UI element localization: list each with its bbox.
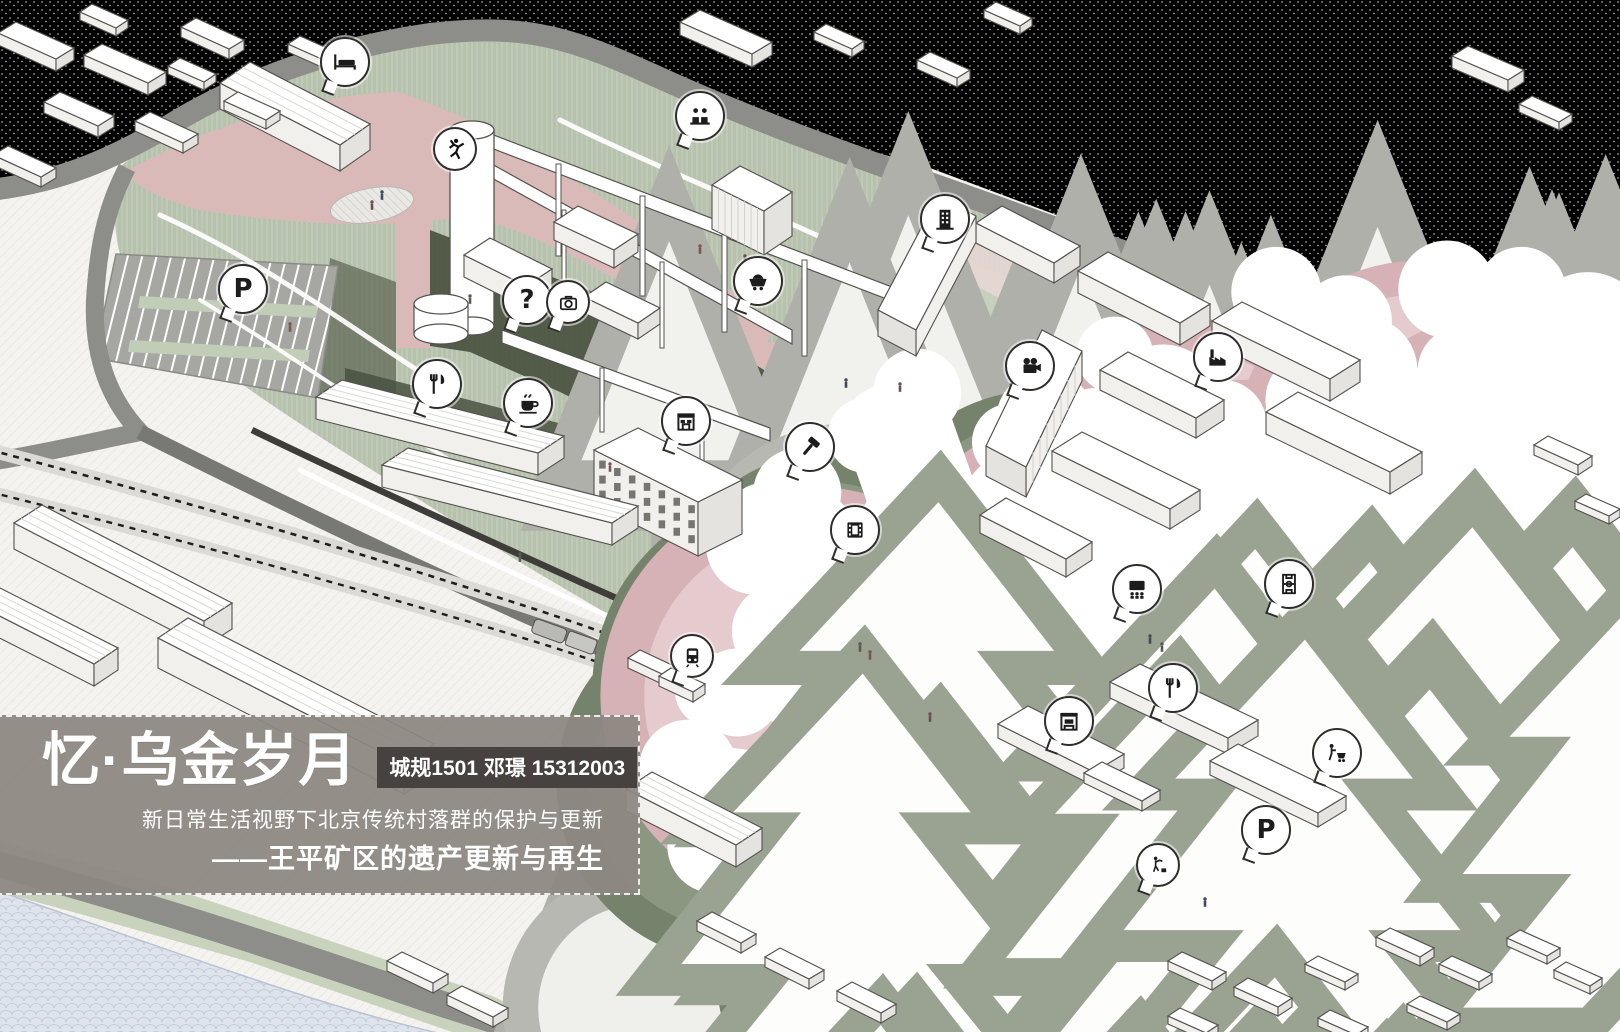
shop-bubble <box>661 396 711 446</box>
info-question-mark: ? <box>519 287 534 313</box>
restaurant-east-bubble <box>1148 663 1198 713</box>
rock-climbing-icon <box>442 136 468 162</box>
mining-machinery-bubble <box>733 256 783 306</box>
camera-icon <box>557 291 580 314</box>
mine-cart-bubble <box>1312 728 1362 778</box>
author-badge: 城规1501 邓璟 15312003 <box>377 747 637 788</box>
market-bubble <box>1044 696 1094 746</box>
market-icon <box>1056 708 1082 734</box>
workshop-hammer-bubble <box>785 422 835 472</box>
storage-tank <box>414 294 468 344</box>
cafe-bubble <box>503 378 553 428</box>
rock-climbing-bubble <box>433 127 477 171</box>
sports-court-icon <box>1276 571 1302 597</box>
shop-icon <box>673 408 699 434</box>
park-people-icon <box>687 103 713 129</box>
mine-cart-icon <box>1324 740 1350 766</box>
outdoor-cinema-icon <box>1124 576 1150 602</box>
waterfront-bubble <box>1136 843 1180 887</box>
train-station-icon <box>681 645 704 668</box>
parking-west-bubble: P <box>218 264 268 314</box>
factory-bubble <box>1193 332 1243 382</box>
poster-title: 忆·乌金岁月 <box>42 731 357 792</box>
waterfront-icon <box>1147 854 1170 877</box>
camera-bubble <box>546 280 590 324</box>
cafe-icon <box>515 390 541 416</box>
hotel-bed-icon <box>332 49 358 75</box>
hotel-bed-bubble <box>320 37 370 87</box>
film-frame-icon <box>842 517 868 543</box>
train-station-bubble <box>670 634 714 678</box>
poster-subtitle-1: 新日常生活视野下北京传统村落群的保护与更新 <box>42 804 604 834</box>
park-people-bubble <box>675 91 725 141</box>
parking-east-bubble: P <box>1241 805 1291 855</box>
restaurant-icon-east <box>1160 675 1186 701</box>
restaurant-icon-west <box>424 371 450 397</box>
workshop-hammer-icon <box>797 434 823 460</box>
title-panel: 忆·乌金岁月 城规1501 邓璟 15312003 新日常生活视野下北京传统村落… <box>0 715 640 895</box>
info-bubble: ? <box>502 275 552 325</box>
poster-subtitle-2: ——王平矿区的遗产更新与再生 <box>42 837 604 876</box>
masterplan-poster: P ? <box>0 0 1620 1032</box>
outdoor-cinema-bubble <box>1112 564 1162 614</box>
film-frame-bubble <box>830 505 880 555</box>
factory-icon <box>1205 344 1231 370</box>
parking-east-letter: P <box>1256 817 1275 843</box>
mining-machinery-icon <box>745 268 771 294</box>
office-building-icon <box>932 206 958 232</box>
film-camera-icon <box>1017 353 1043 379</box>
office-bubble <box>920 194 970 244</box>
sports-court-bubble <box>1264 559 1314 609</box>
film-camera-bubble <box>1005 341 1055 391</box>
restaurant-west-bubble <box>412 359 462 409</box>
parking-west-letter: P <box>233 276 252 302</box>
